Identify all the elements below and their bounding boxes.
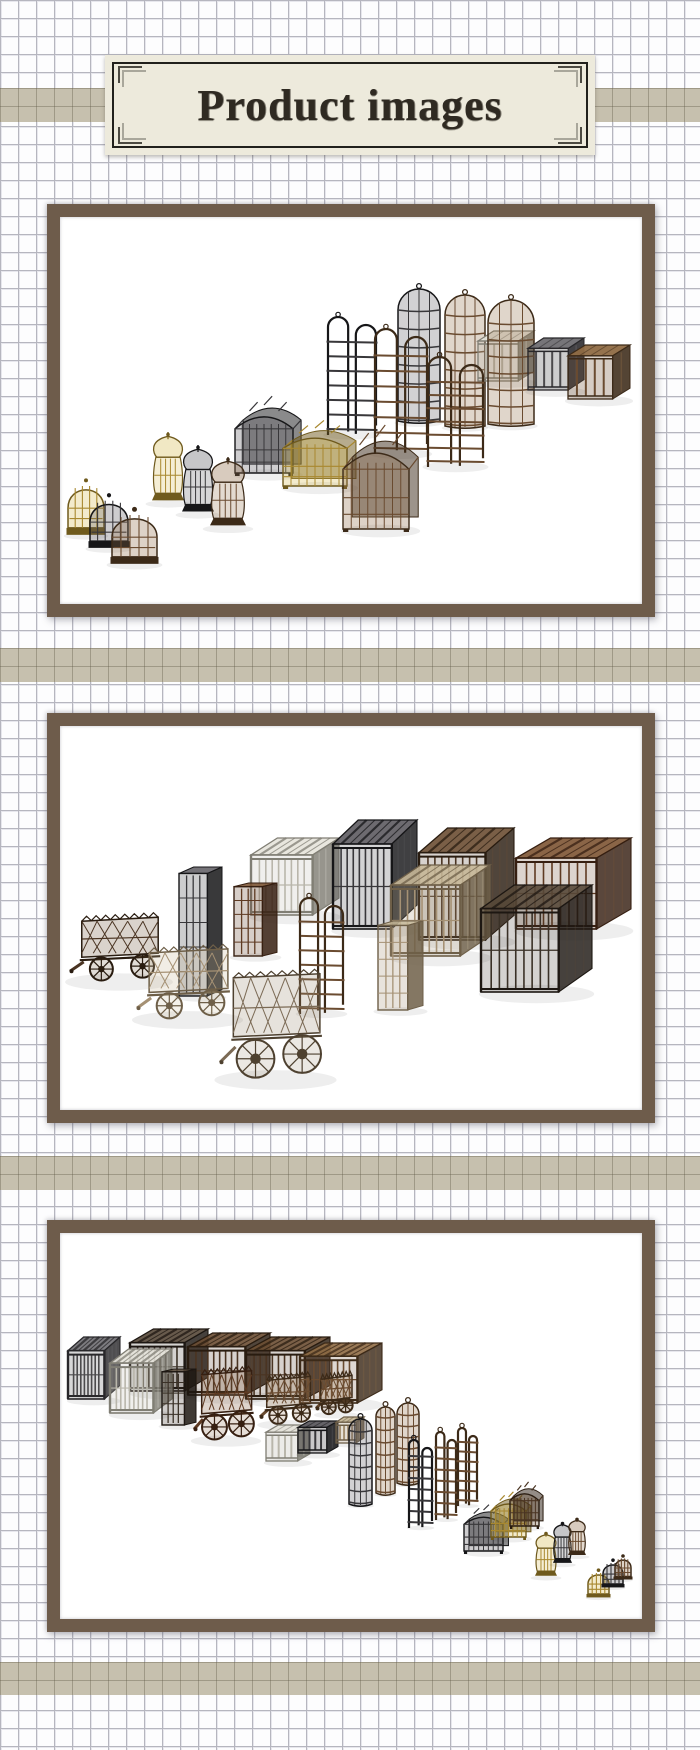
gibbet-cage-black: [323, 312, 381, 439]
decor-band-4: [0, 1662, 700, 1695]
wagon-cage-graybrown: [214, 969, 336, 1089]
tallbox-cage-tan: [374, 921, 428, 1016]
gibbet-cage-brown: [456, 1423, 479, 1508]
corner-mark-top-left: [118, 66, 142, 83]
dome-cage-brown: [613, 1554, 633, 1582]
decor-band-3: [0, 1156, 700, 1190]
cylinder-cage-black: [347, 1414, 374, 1509]
product-image-2[interactable]: [47, 713, 655, 1123]
decor-band-2: [0, 648, 700, 682]
corner-mark-bottom-left: [118, 127, 142, 144]
product-image-2-scene: [60, 726, 642, 1110]
corner-mark-bottom-right: [558, 127, 582, 144]
section-header: Product images: [105, 55, 595, 155]
product-image-1-scene: [60, 217, 642, 604]
wagon-cage-tan: [132, 944, 243, 1028]
product-images-page: { "header": { "title": "Product images" …: [0, 0, 700, 1750]
wagon-cage-redbrown: [191, 1366, 261, 1446]
crate-cage-brown: [565, 345, 633, 406]
bigbox-cage-verydark: [479, 885, 594, 1003]
product-image-3[interactable]: [47, 1220, 655, 1632]
section-title: Product images: [105, 84, 595, 125]
house-cage-darkbrown: [509, 1482, 544, 1531]
crate-cage-black: [296, 1421, 340, 1459]
gibbet-cage-brown: [434, 1427, 458, 1522]
tallbox-cage-verydark: [159, 1369, 200, 1430]
product-image-1[interactable]: [47, 204, 655, 617]
product-image-3-scene: [60, 1233, 642, 1619]
cylinder-cage-brown: [374, 1402, 396, 1497]
corner-mark-top-right: [558, 66, 582, 83]
tallbox-cage-redbrown: [230, 883, 282, 962]
